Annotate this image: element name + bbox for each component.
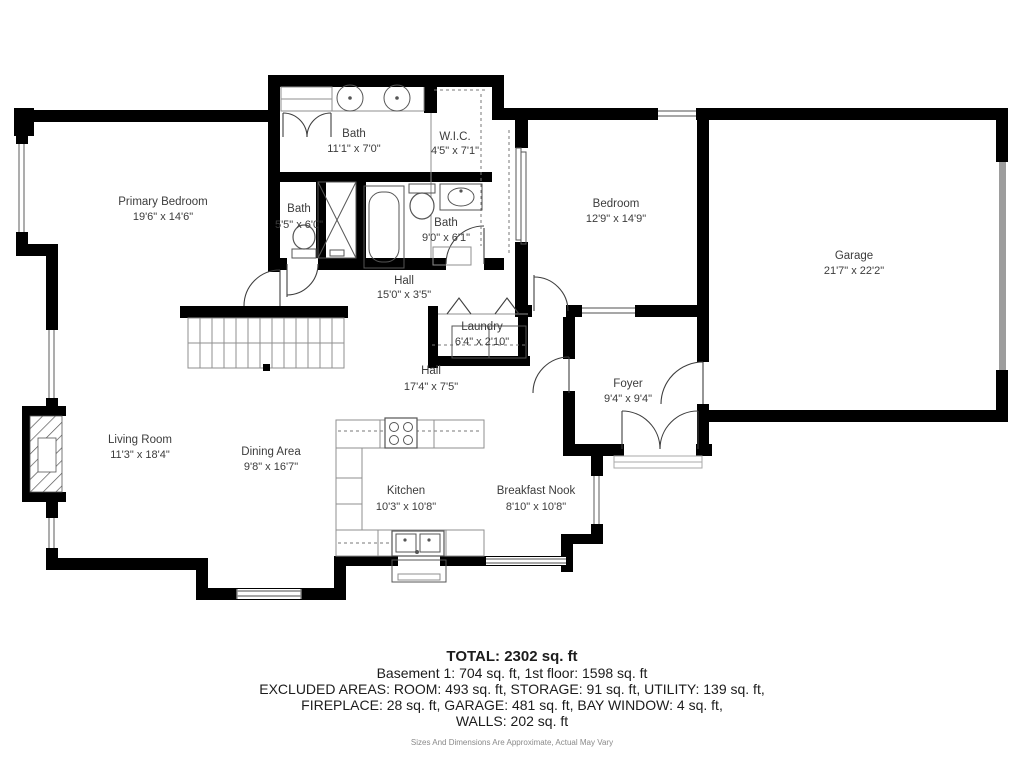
dims-bath-small: 5'5" x 6'0" (275, 219, 323, 231)
window-living-left (46, 330, 58, 398)
bedroom-closet-sliding-doors (516, 148, 526, 244)
label-wic: W.I.C. (439, 131, 470, 143)
dims-kitchen: 10'3" x 10'8" (376, 501, 436, 513)
label-bath-small: Bath (287, 203, 311, 215)
disclaimer-text: Sizes And Dimensions Are Approximate, Ac… (0, 738, 1024, 747)
label-garage: Garage (835, 250, 873, 262)
label-laundry: Laundry (461, 321, 503, 333)
bath-closet-shelf (281, 87, 332, 111)
hall-foyer-door (533, 357, 569, 393)
fireplace-icon (30, 416, 62, 492)
kitchen-sink (392, 531, 444, 556)
double-vanity-sinks (281, 85, 424, 111)
dims-laundry: 6'4" x 2'10" (455, 336, 509, 348)
windows (16, 108, 1006, 599)
window-breakfast-nook-bottom (486, 557, 566, 565)
entry-porch (614, 456, 702, 468)
primary-bath-closet-doors (283, 113, 331, 137)
dims-garage: 21'7" x 22'2" (824, 265, 884, 277)
label-hall-lower: Hall (421, 365, 441, 377)
dims-bath-hall: 9'0" x 6'1" (422, 232, 470, 244)
entry-double-doors (622, 411, 698, 449)
window-bedroom-top (658, 108, 696, 120)
foyer-garage-door (661, 362, 703, 404)
dims-wic: 4'5" x 7'1" (431, 145, 479, 157)
excluded-areas-line2: FIREPLACE: 28 sq. ft, GARAGE: 481 sq. ft… (0, 697, 1024, 713)
window-kitchen-sink-bay (392, 560, 446, 582)
small-bath-door (287, 264, 318, 297)
label-kitchen: Kitchen (387, 485, 425, 497)
floor-areas-text: Basement 1: 704 sq. ft, 1st floor: 1598 … (0, 665, 1024, 681)
excluded-areas-line1: EXCLUDED AREAS: ROOM: 493 sq. ft, STORAG… (0, 681, 1024, 697)
vanity-hall-bath (440, 184, 482, 210)
dims-breakfast-nook: 8'10" x 10'8" (506, 501, 566, 513)
label-dining-area: Dining Area (241, 446, 301, 458)
dims-living-room: 11'3" x 18'4" (110, 449, 170, 461)
label-bedroom: Bedroom (593, 198, 640, 210)
excluded-areas-line3: WALLS: 202 sq. ft (0, 713, 1024, 729)
total-area-text: TOTAL: 2302 sq. ft (0, 649, 1024, 665)
label-breakfast-nook: Breakfast Nook (497, 485, 576, 497)
label-bath-primary: Bath (342, 128, 366, 140)
laundry-bifold-doors (438, 298, 528, 314)
dims-primary-bedroom: 19'6" x 14'6" (133, 211, 193, 223)
window-primary-bedroom-left (16, 144, 28, 232)
label-bath-hall: Bath (434, 217, 458, 229)
floor-plan-page: Primary Bedroom 19'6" x 14'6" Bath 11'1"… (0, 0, 1024, 768)
label-hall-upper: Hall (394, 275, 414, 287)
kitchen-counter-left (336, 448, 362, 530)
dims-bedroom: 12'9" x 14'9" (586, 213, 646, 225)
bedroom-door (534, 275, 568, 311)
dims-foyer: 9'4" x 9'4" (604, 393, 652, 405)
primary-bedroom-door (244, 270, 280, 306)
label-living-room: Living Room (108, 434, 172, 446)
dims-hall-lower: 17'4" x 7'5" (404, 381, 458, 393)
area-summary: TOTAL: 2302 sq. ft Basement 1: 704 sq. f… (0, 649, 1024, 747)
dims-hall-upper: 15'0" x 3'5" (377, 289, 431, 301)
window-living-left-lower (46, 518, 58, 548)
garage-door (999, 162, 1006, 370)
window-bedroom-foyer (582, 306, 635, 316)
dims-bath-primary: 11'1" x 7'0" (327, 143, 380, 155)
label-primary-bedroom: Primary Bedroom (118, 196, 207, 208)
label-foyer: Foyer (613, 378, 643, 390)
stairs (188, 318, 344, 371)
bay-window-dining (237, 589, 301, 599)
stove (385, 418, 417, 448)
dims-dining-area: 9'8" x 16'7" (244, 461, 298, 473)
walls (14, 75, 1008, 600)
window-breakfast-nook-right (592, 476, 602, 524)
bathtub (364, 186, 404, 268)
